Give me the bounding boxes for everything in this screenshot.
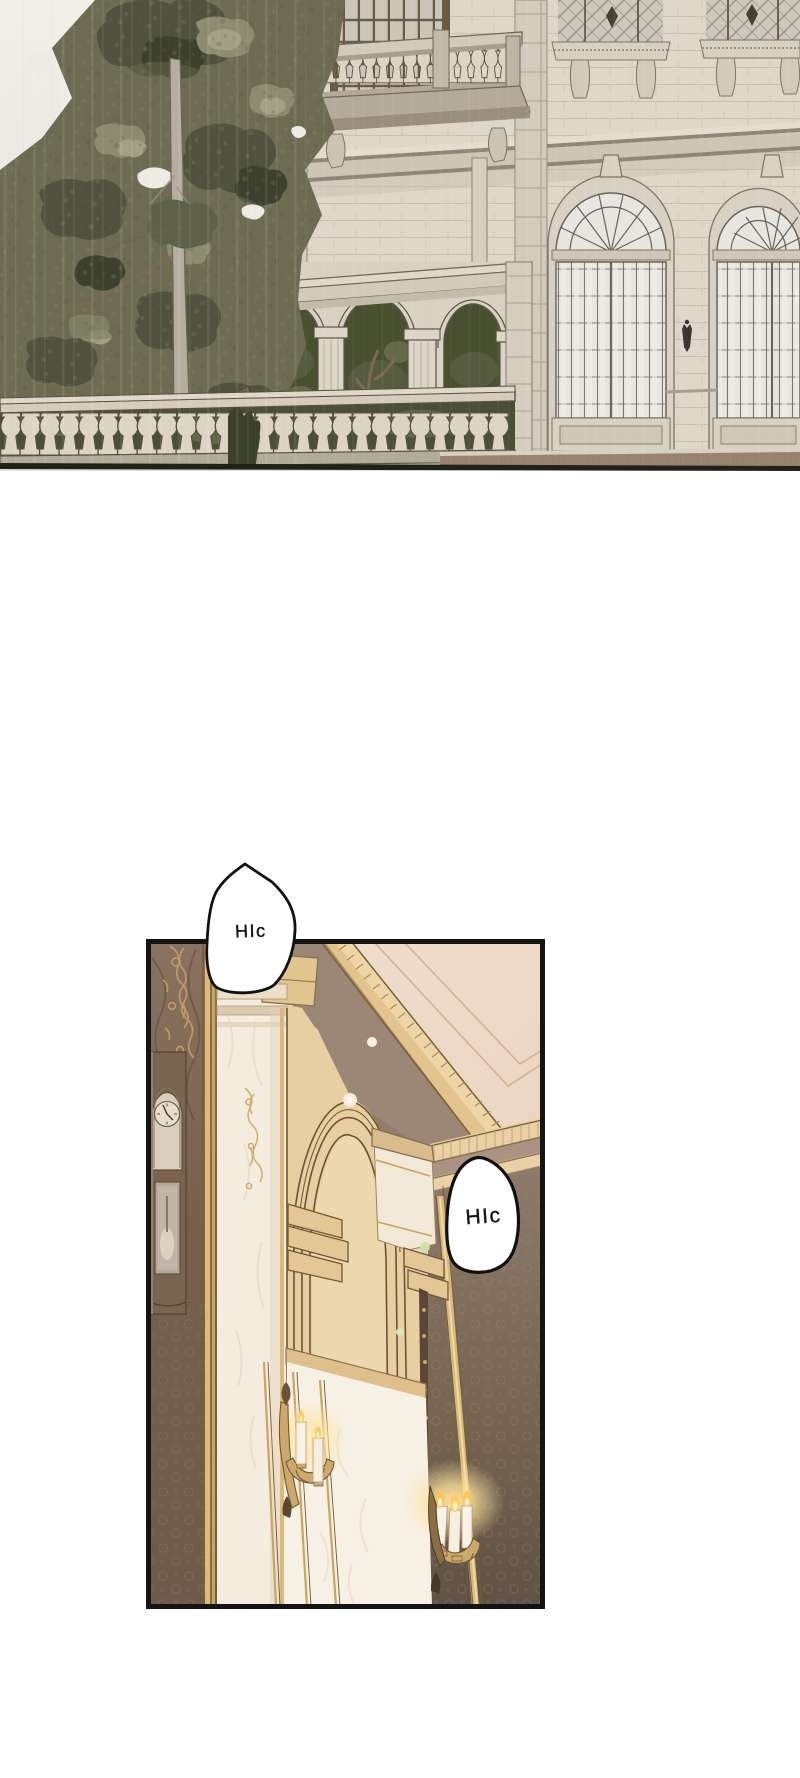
svg-text:HIc: HIc	[235, 920, 267, 941]
svg-text:HIc: HIc	[465, 1204, 503, 1229]
